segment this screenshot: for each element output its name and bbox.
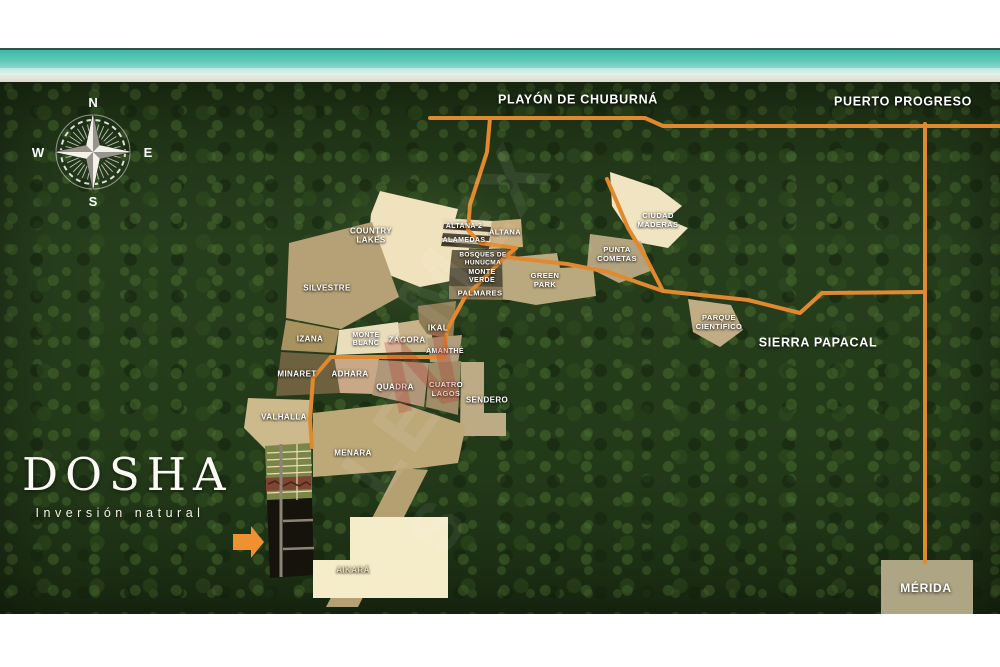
compass-east-label: E: [144, 145, 153, 160]
parcel-quadra: [372, 360, 429, 407]
parcel-aikara: [313, 517, 448, 598]
dosha-logo-title: DOSHA: [22, 452, 218, 497]
parcel-cuatro-lagos: [426, 361, 461, 415]
parcel-sendero: [460, 362, 506, 436]
compass-south-label: S: [89, 194, 98, 209]
compass-west-label: W: [32, 145, 45, 160]
map-graphics: NESW: [0, 0, 1000, 667]
compass-rose-icon: NESW: [32, 95, 153, 209]
parcel-merida-box: [881, 560, 973, 614]
road-line: [430, 118, 1000, 126]
map-canvas: NESW PLAYÓN DE CHUBURNÁPUERTO PROGRESOSI…: [0, 0, 1000, 667]
compass-north-label: N: [88, 95, 97, 110]
parcel-menara: [313, 403, 466, 477]
top-white-margin: [0, 0, 1000, 48]
parcel-palmares: [449, 286, 512, 300]
dosha-logo-subtitle: Inversión natural: [22, 506, 218, 520]
lot-grid-line: [283, 520, 313, 521]
parcel-dosha-black-lots: [267, 498, 314, 578]
parcel-parque-cientifico: [688, 299, 743, 347]
parcel-adhara: [334, 356, 379, 394]
dosha-arrow-icon: [233, 526, 264, 558]
parcel-monte-blanc: [336, 322, 402, 355]
lot-grid-line: [283, 548, 314, 549]
bottom-white-margin: [0, 614, 1000, 667]
dosha-logo: DOSHA Inversión natural: [22, 452, 218, 520]
